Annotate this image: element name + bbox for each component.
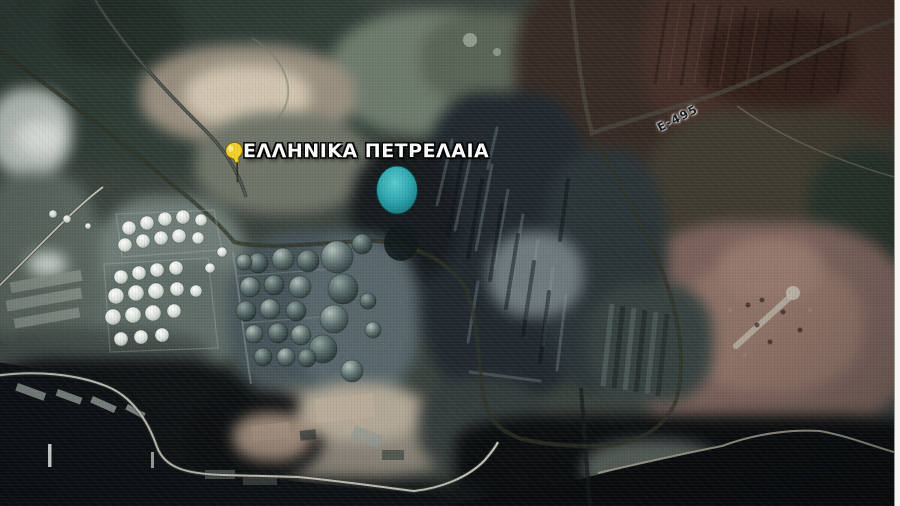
map-detail-layer bbox=[0, 0, 900, 506]
refinery-structures bbox=[437, 128, 568, 381]
place-label[interactable]: ΕΛΛΗΝΙΚΑ ΠΕΤΡΕΛΑΙΑ bbox=[243, 140, 489, 162]
page-edge bbox=[894, 0, 900, 506]
field-details bbox=[728, 286, 812, 357]
harbor-water bbox=[0, 362, 455, 506]
domed-storage-tanks bbox=[236, 234, 381, 382]
satellite-map-canvas[interactable]: ΕΛΛΗΝΙΚΑ ΠΕΤΡΕΛΑΙΑ E-495 bbox=[0, 0, 900, 506]
access-road bbox=[92, 0, 898, 384]
sea bbox=[452, 431, 900, 506]
settling-pond bbox=[377, 166, 419, 261]
dock-rows bbox=[603, 304, 667, 396]
